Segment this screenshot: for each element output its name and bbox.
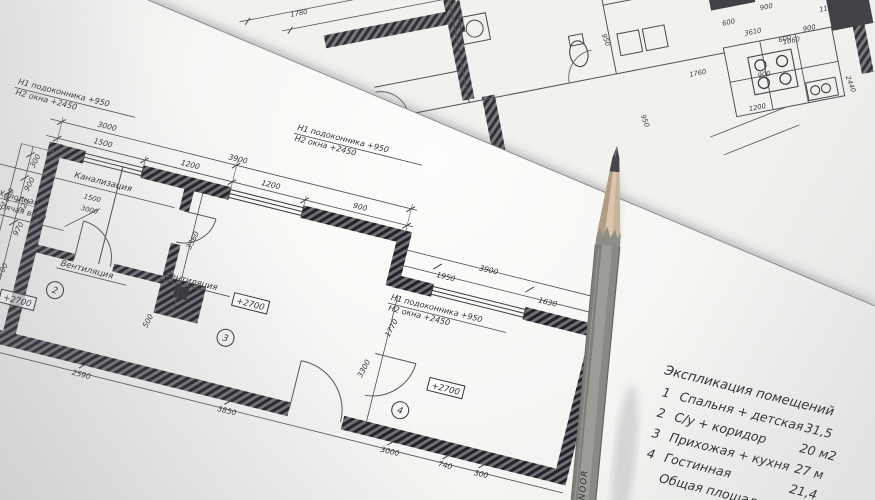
blueprint-photo: 1780493064060095095036101060114024406009… bbox=[0, 0, 875, 500]
shadow-overlay-top-left bbox=[0, 0, 875, 500]
